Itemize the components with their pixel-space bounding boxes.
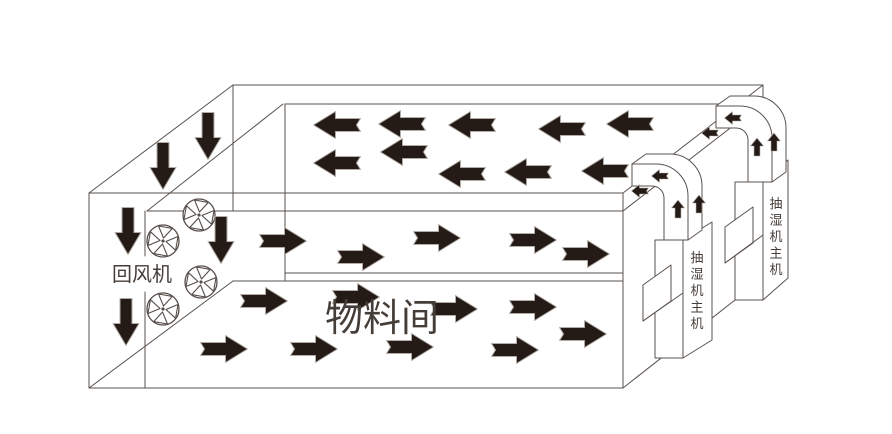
flow-arrow-right xyxy=(201,336,248,363)
flow-arrow-left xyxy=(449,112,496,139)
flow-arrow-left xyxy=(582,158,629,185)
fan-icon xyxy=(147,293,179,325)
flow-arrow-left xyxy=(314,112,361,139)
flow-arrow-left xyxy=(505,159,552,186)
flow-arrow-left xyxy=(381,139,428,166)
flow-arrow-left xyxy=(379,111,426,138)
flow-arrow-right xyxy=(510,227,557,254)
flow-arrow-down xyxy=(113,299,139,346)
dehumidifier-far-label: 抽湿机主机 xyxy=(769,197,782,278)
flow-arrow-right xyxy=(492,337,539,364)
fan-icon xyxy=(183,199,215,231)
return-fan-label: 回风机 xyxy=(112,262,172,286)
flow-arrow-left xyxy=(607,111,654,138)
flow-arrow-right xyxy=(260,228,307,255)
flow-arrow-right xyxy=(560,321,607,348)
dehumidifier-near-label: 抽湿机主机 xyxy=(690,251,703,332)
flow-arrow-left xyxy=(539,116,586,143)
flow-arrow-left xyxy=(314,150,361,177)
material-room-label: 物料间 xyxy=(325,296,439,340)
flow-arrow-down xyxy=(150,143,176,190)
fan-icon xyxy=(185,266,217,298)
flow-arrow-right xyxy=(563,241,610,268)
flow-arrow-left xyxy=(439,161,486,188)
fan-icon xyxy=(147,225,179,257)
flow-arrow-down xyxy=(195,113,221,160)
diagram-stage: 回风机物料间抽湿机主机抽湿机主机 xyxy=(0,0,892,434)
far-duct-elbow xyxy=(716,106,772,182)
flow-arrow-right xyxy=(241,288,288,315)
flow-arrow-right xyxy=(414,225,461,252)
flow-arrow-down xyxy=(115,208,141,255)
flow-arrow-right xyxy=(510,294,557,321)
diagram-canvas: 回风机物料间抽湿机主机抽湿机主机 xyxy=(0,0,892,434)
flow-arrow-right xyxy=(338,244,385,271)
